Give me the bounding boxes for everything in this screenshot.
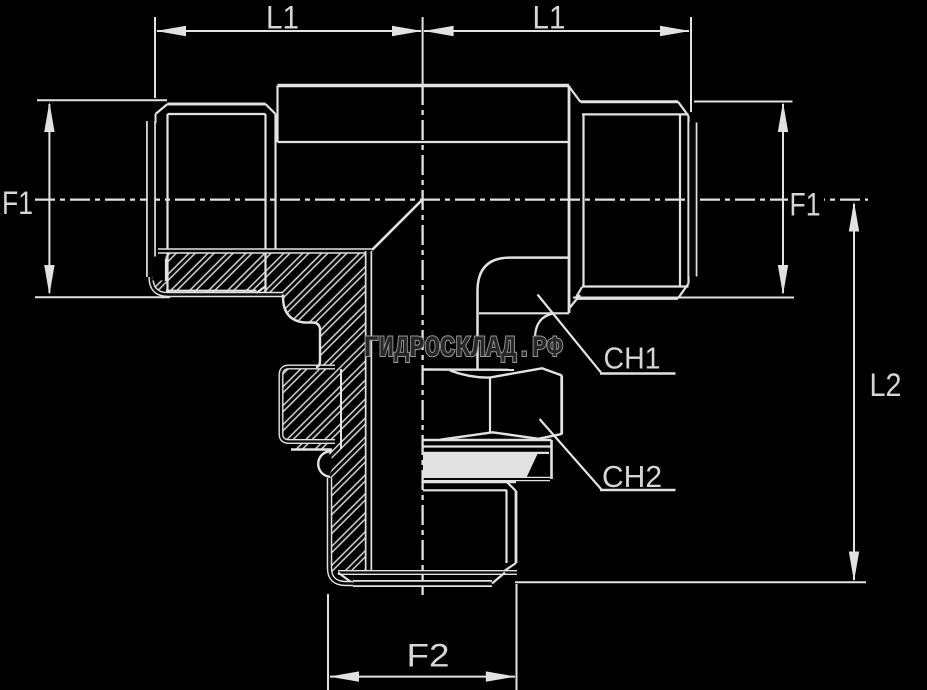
svg-text:L1: L1	[533, 0, 566, 36]
svg-text:F2: F2	[407, 638, 450, 674]
svg-text:F1: F1	[2, 185, 33, 221]
svg-text:ГИДРОСКЛАД.РФ: ГИДРОСКЛАД.РФ	[364, 332, 563, 366]
svg-text:L2: L2	[870, 367, 902, 403]
svg-text:CH1: CH1	[604, 340, 661, 375]
svg-text:L1: L1	[266, 0, 299, 36]
svg-text:CH2: CH2	[602, 459, 662, 494]
svg-text:F1: F1	[790, 187, 821, 223]
